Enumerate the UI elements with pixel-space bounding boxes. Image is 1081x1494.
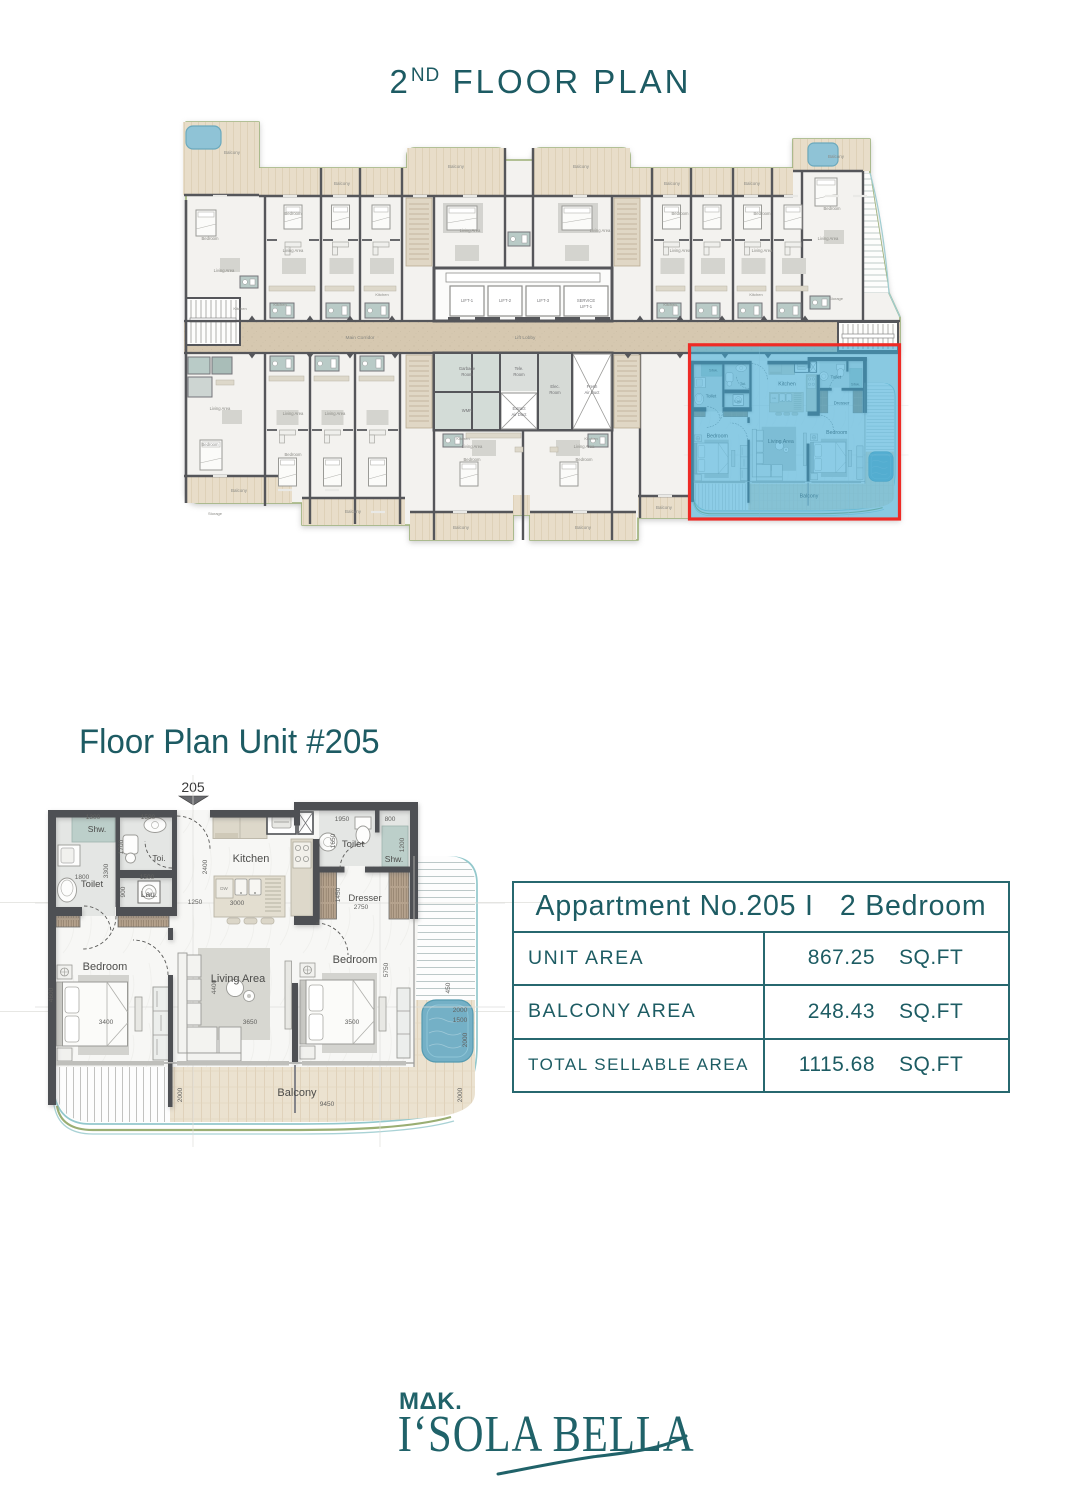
svg-text:Toilet: Toilet [342, 839, 365, 850]
svg-text:Balcony: Balcony [664, 181, 681, 186]
svg-text:Balcony: Balcony [231, 488, 248, 493]
svg-text:Kitchen: Kitchen [233, 306, 246, 311]
svg-text:Balcony: Balcony [573, 164, 590, 169]
svg-text:4400: 4400 [211, 979, 218, 994]
svg-text:Balcony: Balcony [448, 164, 465, 169]
svg-text:Living Area: Living Area [818, 236, 839, 241]
svg-text:Bedroom: Bedroom [754, 211, 772, 216]
svg-text:Kitchen: Kitchen [663, 302, 676, 307]
svg-text:1500: 1500 [140, 874, 155, 881]
svg-text:1200: 1200 [399, 837, 406, 852]
svg-text:1650: 1650 [330, 833, 337, 848]
svg-text:3300: 3300 [103, 863, 110, 878]
svg-text:Main Corridor: Main Corridor [345, 335, 374, 341]
svg-text:WMR: WMR [462, 408, 472, 413]
svg-text:2750: 2750 [354, 904, 369, 911]
svg-text:Dresser: Dresser [348, 893, 381, 904]
svg-text:2000: 2000 [177, 1087, 184, 1102]
svg-text:LIFT-2: LIFT-2 [499, 298, 512, 303]
svg-text:Storage: Storage [829, 296, 844, 301]
svg-text:Balcony: Balcony [334, 181, 351, 186]
svg-text:Balcony: Balcony [345, 509, 362, 514]
svg-text:Air Duct: Air Duct [585, 390, 601, 395]
svg-text:1500: 1500 [453, 1017, 468, 1024]
svg-text:1800: 1800 [75, 874, 90, 881]
svg-text:Extract: Extract [512, 406, 526, 411]
svg-text:800: 800 [385, 816, 396, 823]
svg-text:Bedroom: Bedroom [285, 452, 303, 457]
svg-text:Storage: Storage [208, 511, 223, 516]
svg-text:Air Duct: Air Duct [512, 412, 528, 417]
svg-text:SERVICE: SERVICE [577, 298, 596, 303]
svg-text:DW: DW [220, 886, 228, 891]
svg-text:Bedroom: Bedroom [672, 211, 690, 216]
svg-text:Balcony: Balcony [224, 150, 241, 155]
svg-text:3400: 3400 [99, 1019, 114, 1026]
svg-text:LIFT-1: LIFT-1 [580, 304, 593, 309]
svg-text:Bedroom: Bedroom [576, 457, 594, 462]
svg-text:Bedroom: Bedroom [333, 954, 378, 966]
svg-text:LIFT-3: LIFT-3 [537, 298, 550, 303]
svg-text:Balcony: Balcony [575, 525, 592, 530]
svg-text:Living Area: Living Area [325, 411, 346, 416]
svg-text:1450: 1450 [335, 887, 342, 902]
svg-text:Balcony: Balcony [656, 505, 673, 510]
svg-text:Bedroom: Bedroom [464, 457, 482, 462]
svg-text:3000: 3000 [230, 900, 245, 907]
svg-text:Kitchen: Kitchen [273, 302, 286, 307]
svg-text:Lift Lobby: Lift Lobby [515, 335, 536, 341]
svg-text:Balcony: Balcony [744, 181, 761, 186]
svg-text:Lau.: Lau. [141, 889, 158, 899]
svg-text:1300: 1300 [86, 814, 101, 821]
svg-text:1950: 1950 [335, 816, 350, 823]
svg-text:Bedroom: Bedroom [285, 211, 303, 216]
svg-text:Living Area: Living Area [214, 268, 235, 273]
svg-text:2400: 2400 [202, 859, 209, 874]
svg-text:Bedroom: Bedroom [202, 442, 220, 447]
svg-text:Kitchen: Kitchen [375, 292, 388, 297]
svg-text:Kitchen: Kitchen [456, 436, 469, 441]
svg-text:Room: Room [513, 372, 525, 377]
svg-text:Living Area: Living Area [460, 228, 481, 233]
svg-text:I‘SOLA BELLA: I‘SOLA BELLA [398, 1406, 694, 1463]
svg-text:Elec.: Elec. [550, 384, 559, 389]
svg-text:900: 900 [120, 886, 127, 897]
svg-text:Living Area: Living Area [574, 444, 595, 449]
svg-text:Kitchen: Kitchen [749, 292, 762, 297]
svg-text:5750: 5750 [383, 962, 390, 977]
svg-text:4600: 4600 [48, 987, 55, 1002]
svg-text:450: 450 [445, 982, 452, 993]
svg-text:Toi.: Toi. [152, 853, 165, 863]
svg-text:1700: 1700 [118, 839, 125, 854]
svg-text:3500: 3500 [345, 1019, 360, 1026]
svg-text:2000: 2000 [457, 1087, 464, 1102]
svg-text:Kitchen: Kitchen [233, 853, 270, 865]
svg-text:Balcony: Balcony [277, 1087, 317, 1099]
svg-text:Garbage: Garbage [459, 366, 476, 371]
svg-text:Room: Room [549, 390, 561, 395]
svg-text:Bedroom: Bedroom [202, 236, 220, 241]
svg-text:1500: 1500 [141, 814, 156, 821]
svg-text:Living Area: Living Area [210, 406, 231, 411]
svg-text:Balcony: Balcony [453, 525, 470, 530]
svg-text:Shw.: Shw. [385, 854, 403, 864]
svg-text:Living Area: Living Area [752, 248, 773, 253]
svg-text:Room: Room [461, 372, 473, 377]
svg-text:Fresh: Fresh [587, 384, 598, 389]
svg-text:1250: 1250 [188, 899, 203, 906]
svg-text:2000: 2000 [462, 1032, 469, 1047]
svg-text:Living Area: Living Area [670, 248, 691, 253]
svg-text:Bedroom: Bedroom [83, 961, 128, 973]
svg-text:Shw.: Shw. [88, 824, 106, 834]
svg-text:3650: 3650 [243, 1019, 258, 1026]
svg-text:Living Area: Living Area [283, 411, 304, 416]
svg-text:LIFT-1: LIFT-1 [461, 298, 474, 303]
svg-text:Tele.: Tele. [515, 366, 524, 371]
svg-text:Bedroom: Bedroom [824, 206, 842, 211]
svg-text:Living Area: Living Area [283, 248, 304, 253]
svg-text:Living Area: Living Area [590, 228, 611, 233]
svg-text:Living Area: Living Area [462, 444, 483, 449]
svg-text:Kitchen: Kitchen [584, 436, 597, 441]
svg-text:2000: 2000 [453, 1007, 468, 1014]
svg-text:Balcony: Balcony [828, 154, 845, 159]
svg-text:Living Area: Living Area [211, 973, 266, 985]
svg-text:9450: 9450 [320, 1101, 335, 1108]
